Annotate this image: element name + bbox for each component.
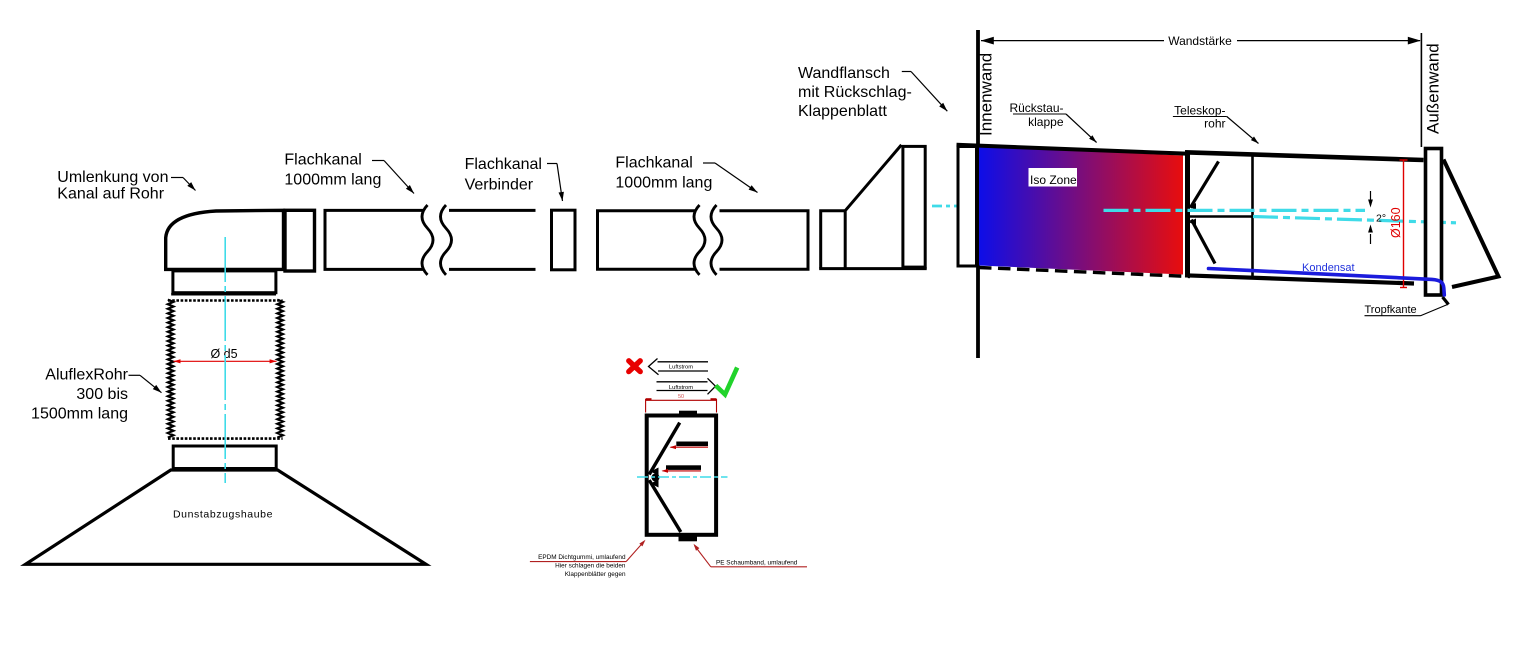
svg-text:Flachkanal: Flachkanal [615,155,692,172]
svg-text:Iso Zone: Iso Zone [1030,173,1077,187]
svg-text:300 bis: 300 bis [76,386,128,403]
svg-text:Innenwand: Innenwand [977,53,996,136]
svg-text:Klappenblätter gegen: Klappenblätter gegen [565,571,626,578]
svg-text:Rückstau-: Rückstau- [1009,101,1063,115]
svg-text:PE Schaumband, umlaufend: PE Schaumband, umlaufend [716,560,798,567]
svg-text:1000mm lang: 1000mm lang [615,175,712,192]
svg-text:Kondensat: Kondensat [1302,262,1355,274]
svg-text:Klappenblatt: Klappenblatt [798,103,888,120]
svg-text:Wandflansch: Wandflansch [798,65,890,82]
svg-text:Flachkanal: Flachkanal [465,156,542,173]
svg-text:Flachkanal: Flachkanal [284,152,361,169]
svg-text:Kanal auf Rohr: Kanal auf Rohr [57,186,164,203]
svg-text:Ø160: Ø160 [1389,207,1403,238]
svg-text:EPDM Dichtgummi, umlaufend: EPDM Dichtgummi, umlaufend [538,554,626,561]
svg-text:Teleskop-: Teleskop- [1174,104,1225,118]
svg-text:Wandstärke: Wandstärke [1168,34,1232,48]
svg-text:Dunstabzugshaube: Dunstabzugshaube [173,509,273,521]
svg-text:Luftstrom: Luftstrom [669,365,693,371]
svg-text:Ø d5: Ø d5 [210,347,237,361]
svg-text:Tropfkante: Tropfkante [1365,304,1417,316]
svg-text:2°: 2° [1376,213,1386,225]
svg-text:1500mm lang: 1500mm lang [31,406,128,423]
svg-text:Hier schlagen die beiden: Hier schlagen die beiden [555,563,626,570]
svg-text:klappe: klappe [1028,115,1064,129]
svg-text:mit Rückschlag-: mit Rückschlag- [798,84,912,101]
svg-text:Umlenkung von: Umlenkung von [57,169,168,186]
svg-text:AluflexRohr: AluflexRohr [45,367,128,384]
svg-text:50: 50 [678,394,684,400]
svg-text:Außenwand: Außenwand [1424,43,1443,134]
svg-text:Verbinder: Verbinder [465,177,534,194]
svg-text:1000mm lang: 1000mm lang [284,172,381,189]
svg-text:rohr: rohr [1204,117,1225,131]
svg-text:Luftstrom: Luftstrom [669,385,693,391]
